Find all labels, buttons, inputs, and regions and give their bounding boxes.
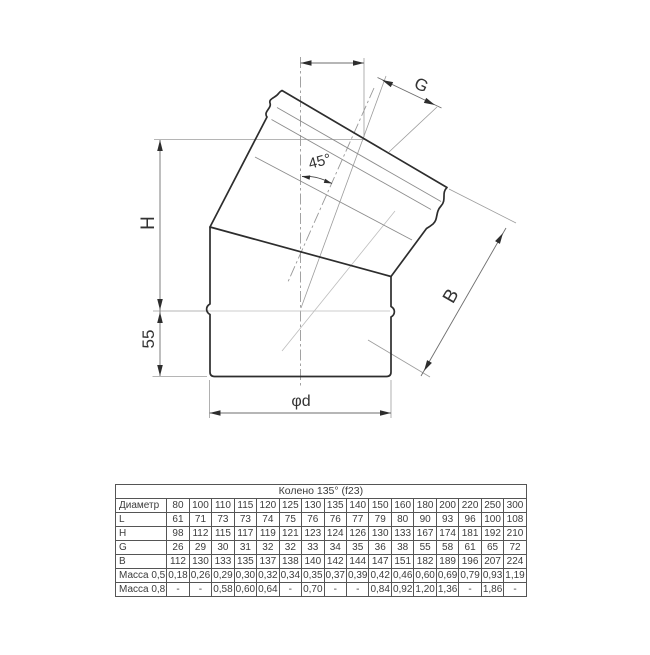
table-cell: - (459, 583, 481, 597)
table-cell: 174 (436, 527, 458, 541)
table-cell: - (324, 583, 346, 597)
table-cell: 189 (436, 555, 458, 569)
table-cell: 74 (257, 513, 279, 527)
table-cell: 0,92 (391, 583, 413, 597)
table-cell: - (504, 583, 526, 597)
table-cell: 121 (279, 527, 301, 541)
table-cell: 36 (369, 541, 391, 555)
column-header: 220 (459, 499, 481, 513)
column-header: 110 (212, 499, 234, 513)
table-cell: 210 (504, 527, 526, 541)
segment-joint-line (255, 157, 412, 240)
table-cell: 130 (189, 555, 211, 569)
table-cell: 93 (436, 513, 458, 527)
column-header: Диаметр (116, 499, 167, 513)
table-cell: 72 (504, 541, 526, 555)
table-cell: 151 (391, 555, 413, 569)
table-cell: 1,19 (504, 569, 526, 583)
table-cell: 96 (459, 513, 481, 527)
column-header: 250 (481, 499, 503, 513)
table-cell: 73 (212, 513, 234, 527)
table-cell: 98 (167, 527, 189, 541)
elbow-body (207, 91, 447, 377)
table-cell: 182 (414, 555, 436, 569)
table-cell: 75 (279, 513, 301, 527)
table-cell: 0,79 (459, 569, 481, 583)
table-cell: 167 (414, 527, 436, 541)
table-cell: 0,60 (234, 583, 256, 597)
socket-seam-line (277, 108, 441, 202)
table-cell: 0,26 (189, 569, 211, 583)
table-cell: 112 (189, 527, 211, 541)
dimension-lines (160, 63, 506, 413)
table-cell: 124 (324, 527, 346, 541)
column-header: 115 (234, 499, 256, 513)
table-cell: 33 (302, 541, 324, 555)
column-header: 300 (504, 499, 526, 513)
centerlines (287, 57, 374, 386)
table-cell: 224 (504, 555, 526, 569)
table-row: G26293031323233343536385558616572 (116, 541, 527, 555)
column-header: 140 (347, 499, 369, 513)
table-cell: 1,86 (481, 583, 503, 597)
table-cell: 76 (324, 513, 346, 527)
row-label: Масса 0,8 (116, 583, 167, 597)
table-cell: 1,36 (436, 583, 458, 597)
table-cell: 0,32 (257, 569, 279, 583)
table-cell: - (347, 583, 369, 597)
table-cell: 0,58 (212, 583, 234, 597)
table-cell: 135 (234, 555, 256, 569)
table-cell: 112 (167, 555, 189, 569)
spec-table-body: Колено 135° (f23)Диаметр8010011011512012… (116, 485, 527, 597)
table-cell: 147 (369, 555, 391, 569)
table-cell: 0,64 (257, 583, 279, 597)
table-cell: 130 (369, 527, 391, 541)
table-cell: 38 (391, 541, 413, 555)
table-cell: 76 (302, 513, 324, 527)
column-header: 120 (257, 499, 279, 513)
column-header: 80 (167, 499, 189, 513)
table-cell: 133 (212, 555, 234, 569)
row-label: L (116, 513, 167, 527)
table-cell: 1,20 (414, 583, 436, 597)
table-cell: 0,18 (167, 569, 189, 583)
table-cell: 61 (167, 513, 189, 527)
spec-table: Колено 135° (f23)Диаметр8010011011512012… (115, 484, 527, 597)
table-cell: 117 (234, 527, 256, 541)
table-cell: 0,35 (302, 569, 324, 583)
column-header: 180 (414, 499, 436, 513)
row-label: Масса 0,5 (116, 569, 167, 583)
table-cell: 55 (414, 541, 436, 555)
table-cell: 32 (279, 541, 301, 555)
table-title: Колено 135° (f23) (116, 485, 527, 499)
table-cell: 196 (459, 555, 481, 569)
table-cell: 123 (302, 527, 324, 541)
table-cell: - (167, 583, 189, 597)
table-row: Масса 0,50,180,260,290,300,320,340,350,3… (116, 569, 527, 583)
dim-label-h: H (138, 216, 159, 230)
table-cell: 0,60 (414, 569, 436, 583)
table-cell: 133 (391, 527, 413, 541)
table-cell: 115 (212, 527, 234, 541)
table-cell: 58 (436, 541, 458, 555)
spec-table-container: Колено 135° (f23)Диаметр8010011011512012… (115, 484, 527, 597)
table-cell: 126 (347, 527, 369, 541)
table-cell: 80 (391, 513, 413, 527)
table-cell: 119 (257, 527, 279, 541)
table-cell: 144 (347, 555, 369, 569)
table-cell: 0,70 (302, 583, 324, 597)
table-cell: 31 (234, 541, 256, 555)
table-cell: 138 (279, 555, 301, 569)
table-cell: 29 (189, 541, 211, 555)
dim-label-diameter: φd (291, 393, 310, 410)
table-cell: - (189, 583, 211, 597)
table-cell: 0,39 (347, 569, 369, 583)
row-label: G (116, 541, 167, 555)
table-cell: 79 (369, 513, 391, 527)
table-cell: 137 (257, 555, 279, 569)
dim-label-g: G (411, 74, 431, 97)
table-cell: 0,37 (324, 569, 346, 583)
table-cell: 181 (459, 527, 481, 541)
table-cell: 65 (481, 541, 503, 555)
table-cell: 0,34 (279, 569, 301, 583)
table-cell: 0,42 (369, 569, 391, 583)
table-cell: 108 (504, 513, 526, 527)
table-cell: - (279, 583, 301, 597)
table-cell: 142 (324, 555, 346, 569)
extension-lines (153, 58, 517, 418)
row-label: H (116, 527, 167, 541)
table-cell: 32 (257, 541, 279, 555)
table-cell: 140 (302, 555, 324, 569)
table-cell: 26 (167, 541, 189, 555)
table-cell: 0,93 (481, 569, 503, 583)
column-header: 160 (391, 499, 413, 513)
table-row: H981121151171191211231241261301331671741… (116, 527, 527, 541)
dim-label-55: 55 (139, 330, 158, 349)
table-cell: 0,84 (369, 583, 391, 597)
table-row: L6171737374757676777980909396100108 (116, 513, 527, 527)
dim-label-angle: 45° (307, 151, 333, 173)
row-label: B (116, 555, 167, 569)
table-cell: 0,30 (234, 569, 256, 583)
table-cell: 34 (324, 541, 346, 555)
column-header: 150 (369, 499, 391, 513)
table-cell: 30 (212, 541, 234, 555)
table-cell: 71 (189, 513, 211, 527)
table-cell: 90 (414, 513, 436, 527)
table-row: Масса 0,8--0,580,600,64-0,70--0,840,921,… (116, 583, 527, 597)
table-cell: 0,29 (212, 569, 234, 583)
table-cell: 73 (234, 513, 256, 527)
column-header: 100 (189, 499, 211, 513)
table-cell: 100 (481, 513, 503, 527)
column-header: 135 (324, 499, 346, 513)
dim-label-b: B (439, 286, 464, 307)
table-cell: 0,69 (436, 569, 458, 583)
table-row: Колено 135° (f23) (116, 485, 527, 499)
table-cell: 35 (347, 541, 369, 555)
upper-arm-outline (210, 91, 447, 277)
column-header: 200 (436, 499, 458, 513)
dim-line-b (421, 228, 506, 376)
table-row: B112130133135137138140142144147151182189… (116, 555, 527, 569)
column-header: 125 (279, 499, 301, 513)
table-cell: 61 (459, 541, 481, 555)
column-header: 130 (302, 499, 324, 513)
table-cell: 0,46 (391, 569, 413, 583)
table-cell: 207 (481, 555, 503, 569)
table-cell: 192 (481, 527, 503, 541)
table-cell: 77 (347, 513, 369, 527)
table-row: Диаметр801001101151201251301351401501601… (116, 499, 527, 513)
